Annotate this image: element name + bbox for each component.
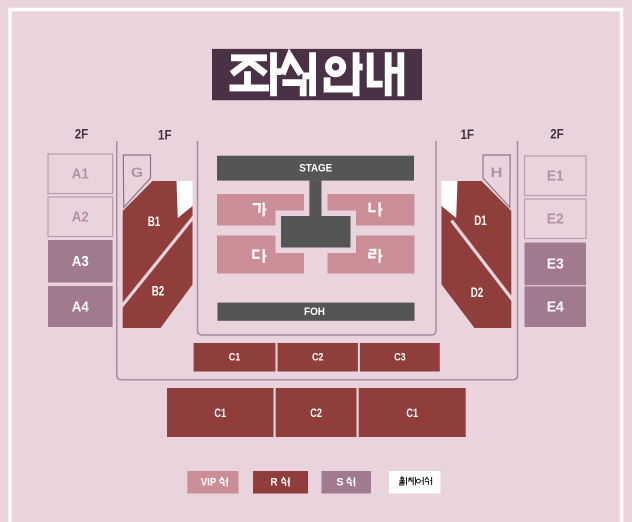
svg-text:C1: C1 bbox=[214, 406, 226, 420]
svg-text:A3: A3 bbox=[72, 253, 89, 270]
svg-text:G: G bbox=[131, 164, 143, 180]
svg-text:1F: 1F bbox=[158, 128, 172, 143]
svg-text:E4: E4 bbox=[547, 298, 565, 315]
svg-text:A2: A2 bbox=[72, 209, 89, 226]
svg-text:E3: E3 bbox=[547, 256, 564, 273]
svg-text:2F: 2F bbox=[550, 127, 564, 142]
svg-text:STAGE: STAGE bbox=[299, 163, 332, 175]
svg-text:FOH: FOH bbox=[304, 306, 325, 318]
svg-text:C1: C1 bbox=[406, 406, 418, 420]
svg-text:1F: 1F bbox=[460, 127, 474, 142]
svg-text:B1: B1 bbox=[148, 214, 161, 229]
svg-text:C2: C2 bbox=[310, 406, 322, 420]
svg-text:C2: C2 bbox=[312, 352, 324, 364]
svg-text:2F: 2F bbox=[75, 127, 89, 142]
svg-text:S: S bbox=[336, 476, 343, 488]
svg-text:C1: C1 bbox=[229, 352, 241, 364]
svg-text:B2: B2 bbox=[152, 284, 165, 299]
svg-text:R: R bbox=[270, 476, 277, 488]
svg-text:D2: D2 bbox=[471, 285, 484, 300]
svg-text:E2: E2 bbox=[547, 211, 564, 228]
svg-text:H: H bbox=[491, 164, 503, 180]
svg-text:E1: E1 bbox=[547, 168, 564, 185]
svg-text:A1: A1 bbox=[72, 166, 89, 183]
svg-text:VIP: VIP bbox=[201, 476, 217, 488]
svg-text:A4: A4 bbox=[72, 298, 90, 315]
svg-text:C3: C3 bbox=[394, 352, 406, 364]
svg-text:D1: D1 bbox=[474, 213, 487, 228]
